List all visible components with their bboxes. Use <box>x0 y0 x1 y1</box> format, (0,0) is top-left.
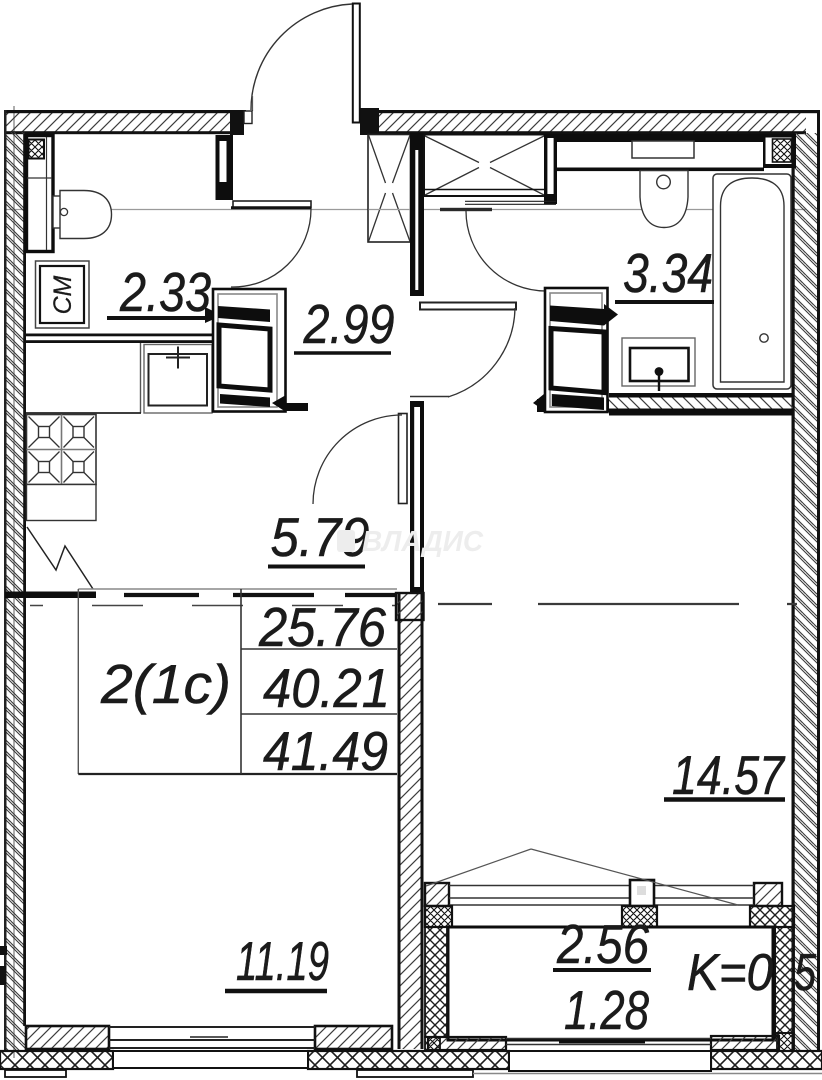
svg-text:41.49: 41.49 <box>263 720 388 782</box>
svg-text:2.56: 2.56 <box>556 913 649 975</box>
svg-text:2.99: 2.99 <box>303 293 395 355</box>
svg-text:14.57: 14.57 <box>672 744 786 806</box>
svg-text:3.34: 3.34 <box>623 242 713 304</box>
svg-text:40.21: 40.21 <box>263 657 390 719</box>
svg-text:СМ: СМ <box>49 276 77 315</box>
svg-text:11.19: 11.19 <box>236 930 329 992</box>
svg-text:ВЛАДИС: ВЛАДИС <box>362 526 484 558</box>
svg-text:1.28: 1.28 <box>564 979 649 1041</box>
svg-text:2(1c): 2(1c) <box>100 653 231 715</box>
svg-text:5: 5 <box>794 944 817 1002</box>
svg-text:25.76: 25.76 <box>258 596 386 658</box>
svg-text:K=0: K=0 <box>687 944 773 1002</box>
svg-text:2.33: 2.33 <box>119 261 211 323</box>
